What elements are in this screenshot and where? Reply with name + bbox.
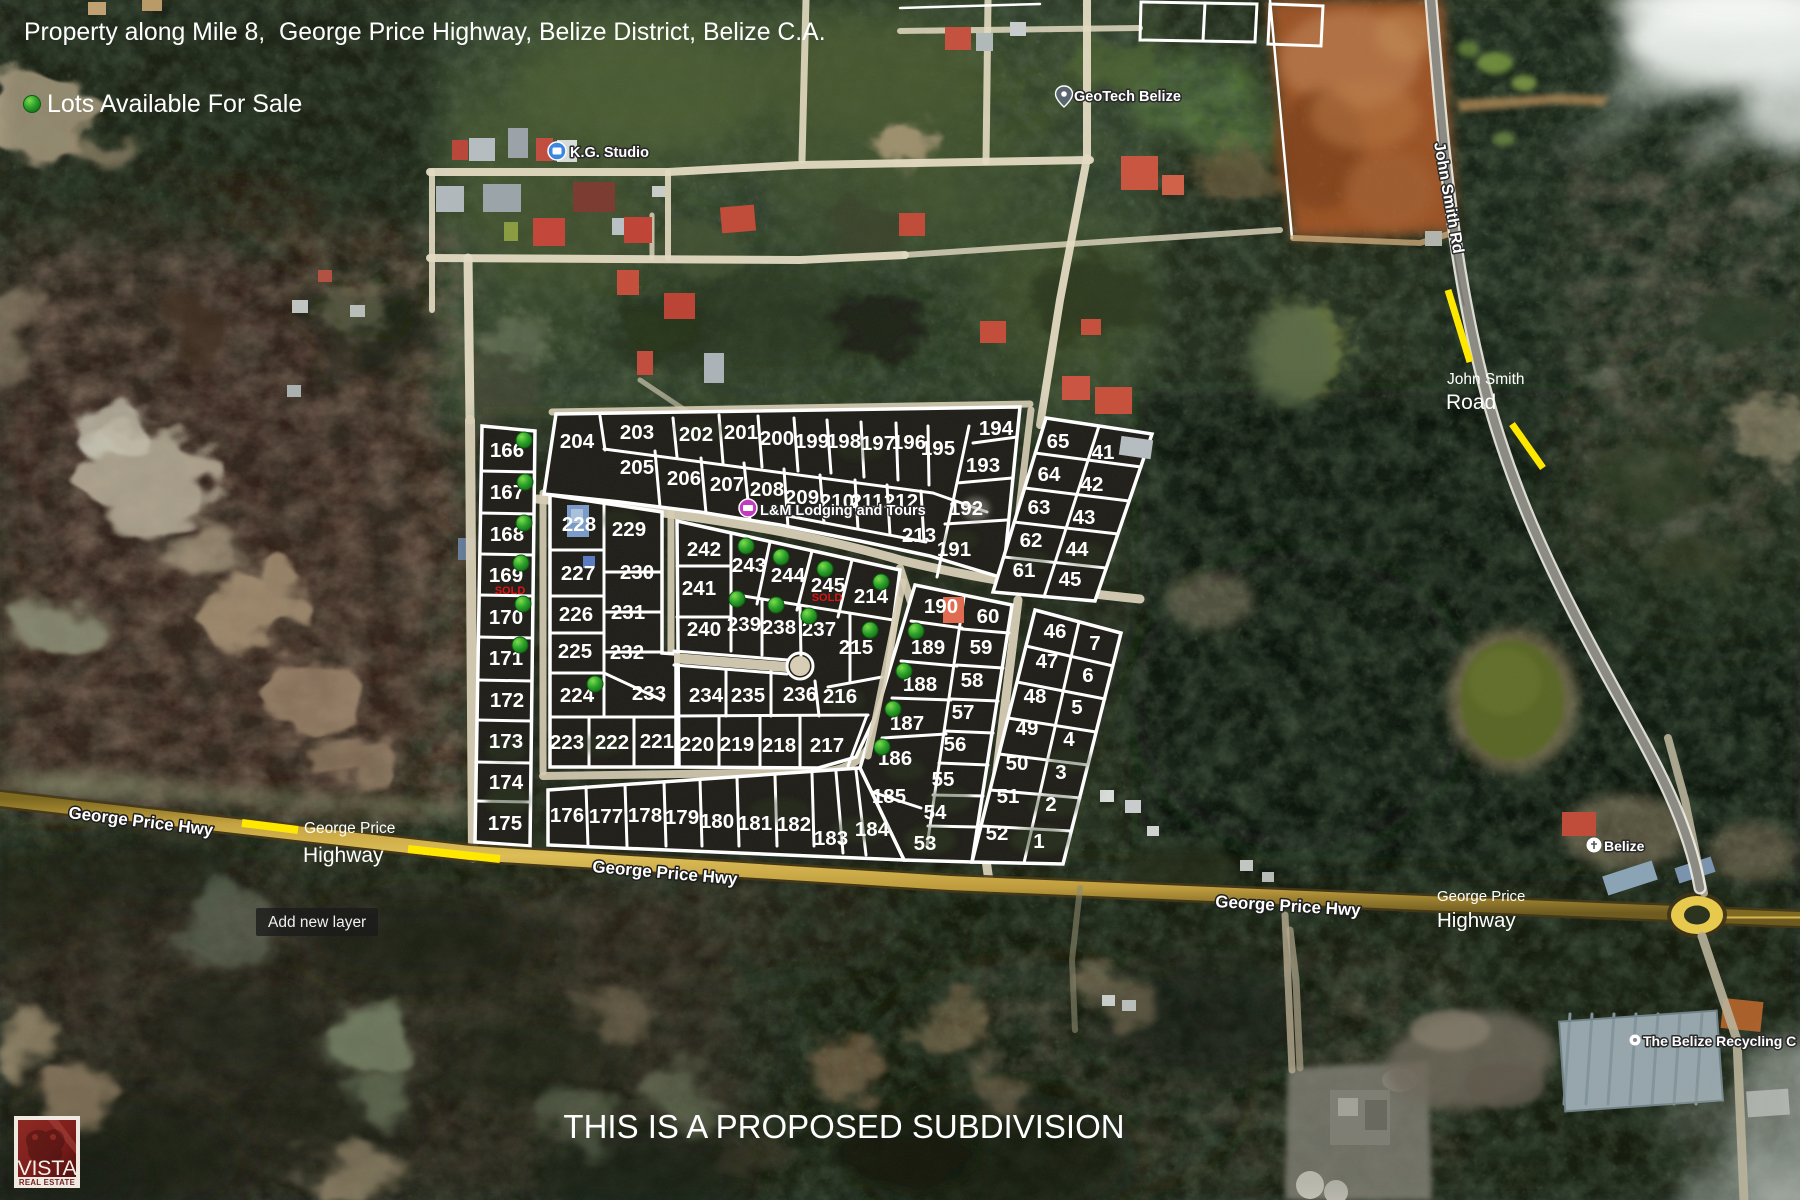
svg-text:62: 62 [1020, 529, 1043, 552]
svg-text:VISTA: VISTA [17, 1156, 77, 1180]
svg-text:217: 217 [810, 734, 844, 757]
svg-text:227: 227 [561, 562, 595, 585]
svg-text:44: 44 [1066, 538, 1089, 561]
svg-text:185: 185 [872, 785, 906, 808]
svg-text:177: 177 [589, 805, 623, 828]
svg-text:194: 194 [979, 417, 1014, 440]
svg-text:218: 218 [762, 734, 796, 757]
svg-text:2: 2 [1045, 793, 1056, 816]
svg-text:244: 244 [771, 564, 806, 587]
svg-text:206: 206 [667, 467, 701, 490]
svg-text:235: 235 [731, 684, 765, 707]
svg-text:222: 222 [595, 731, 629, 754]
svg-text:238: 238 [762, 616, 796, 639]
svg-text:Highway: Highway [1437, 909, 1516, 932]
svg-text:52: 52 [986, 822, 1009, 845]
svg-text:59: 59 [970, 636, 993, 659]
svg-text:239: 239 [727, 613, 761, 636]
svg-text:192: 192 [949, 497, 983, 520]
svg-text:60: 60 [977, 605, 1000, 628]
svg-text:226: 226 [559, 603, 593, 626]
svg-text:202: 202 [679, 423, 713, 446]
svg-text:Belize: Belize [1604, 838, 1645, 854]
svg-text:216: 216 [823, 685, 857, 708]
svg-text:180: 180 [700, 810, 734, 833]
svg-text:4: 4 [1063, 728, 1075, 751]
svg-text:205: 205 [620, 456, 654, 479]
svg-text:K.G. Studio: K.G. Studio [570, 145, 649, 161]
svg-text:172: 172 [490, 689, 524, 712]
svg-text:48: 48 [1024, 685, 1047, 708]
svg-text:195: 195 [921, 437, 955, 460]
svg-text:201: 201 [724, 421, 758, 444]
svg-text:219: 219 [720, 733, 754, 756]
svg-text:236: 236 [783, 683, 817, 706]
svg-text:L&M Lodging and Tours: L&M Lodging and Tours [760, 503, 926, 519]
svg-text:GeoTech Belize: GeoTech Belize [1074, 89, 1181, 105]
svg-text:65: 65 [1047, 430, 1070, 453]
svg-text:45: 45 [1059, 568, 1082, 591]
svg-text:198: 198 [827, 430, 861, 453]
svg-text:231: 231 [611, 601, 645, 624]
svg-text:179: 179 [665, 806, 699, 829]
svg-text:190: 190 [924, 595, 958, 618]
svg-text:220: 220 [680, 733, 714, 756]
svg-text:6: 6 [1082, 664, 1093, 687]
svg-text:182: 182 [777, 813, 811, 836]
svg-text:178: 178 [628, 804, 662, 827]
svg-text:5: 5 [1071, 696, 1082, 719]
svg-text:215: 215 [839, 636, 873, 659]
svg-text:228: 228 [562, 513, 596, 536]
svg-text:208: 208 [750, 478, 784, 501]
svg-text:213: 213 [902, 524, 936, 547]
svg-text:197: 197 [861, 432, 895, 455]
svg-text:242: 242 [687, 538, 721, 561]
svg-text:Road: Road [1446, 391, 1496, 414]
svg-text:193: 193 [966, 454, 1000, 477]
svg-text:Property along Mile 8, George: Property along Mile 8, George Price High… [24, 19, 826, 46]
svg-text:1: 1 [1033, 830, 1044, 853]
svg-text:The Belize Recycling C: The Belize Recycling C [1643, 1033, 1796, 1049]
svg-text:221: 221 [640, 730, 674, 753]
svg-text:175: 175 [488, 812, 522, 835]
svg-text:41: 41 [1092, 441, 1115, 464]
svg-text:191: 191 [937, 538, 971, 561]
svg-text:George Price: George Price [1437, 888, 1525, 905]
svg-text:229: 229 [612, 518, 646, 541]
svg-text:56: 56 [944, 733, 967, 756]
svg-text:184: 184 [855, 818, 890, 841]
svg-text:Add new layer: Add new layer [268, 914, 366, 931]
svg-text:61: 61 [1013, 559, 1036, 582]
svg-text:51: 51 [997, 785, 1020, 808]
svg-text:200: 200 [760, 427, 794, 450]
svg-text:George Price: George Price [304, 820, 395, 837]
svg-text:241: 241 [682, 577, 716, 600]
svg-text:50: 50 [1006, 752, 1029, 775]
svg-text:243: 243 [732, 554, 766, 577]
svg-text:223: 223 [550, 731, 584, 754]
svg-text:47: 47 [1036, 650, 1059, 673]
svg-text:55: 55 [932, 768, 955, 791]
svg-text:46: 46 [1044, 620, 1067, 643]
svg-text:THIS IS A PROPOSED SUBDIVISION: THIS IS A PROPOSED SUBDIVISION [563, 1108, 1124, 1145]
svg-text:204: 204 [560, 430, 595, 453]
svg-text:7: 7 [1089, 632, 1100, 655]
svg-text:176: 176 [550, 804, 584, 827]
svg-text:173: 173 [489, 730, 523, 753]
svg-text:64: 64 [1038, 463, 1061, 486]
svg-text:240: 240 [687, 618, 721, 641]
svg-text:SOLD: SOLD [495, 585, 526, 597]
svg-text:Highway: Highway [303, 844, 384, 867]
svg-text:181: 181 [738, 812, 772, 835]
svg-text:53: 53 [914, 832, 937, 855]
svg-text:3: 3 [1055, 761, 1066, 784]
svg-text:174: 174 [489, 771, 524, 794]
svg-text:57: 57 [952, 701, 975, 724]
svg-text:233: 233 [632, 682, 666, 705]
svg-text:REAL ESTATE: REAL ESTATE [19, 1178, 75, 1187]
svg-text:234: 234 [689, 684, 724, 707]
svg-text:Lots Available For Sale: Lots Available For Sale [47, 90, 302, 118]
svg-text:230: 230 [620, 561, 654, 584]
svg-text:199: 199 [795, 430, 829, 453]
svg-text:207: 207 [710, 473, 744, 496]
svg-text:183: 183 [814, 827, 848, 850]
svg-text:63: 63 [1028, 496, 1051, 519]
svg-text:58: 58 [961, 669, 984, 692]
svg-text:SOLD: SOLD [812, 592, 843, 604]
svg-text:42: 42 [1081, 473, 1104, 496]
svg-text:John Smith: John Smith [1447, 371, 1525, 388]
svg-text:203: 203 [620, 421, 654, 444]
svg-text:232: 232 [610, 641, 644, 664]
svg-text:49: 49 [1016, 717, 1039, 740]
svg-text:43: 43 [1073, 506, 1096, 529]
svg-text:54: 54 [924, 801, 947, 824]
svg-text:225: 225 [558, 640, 592, 663]
